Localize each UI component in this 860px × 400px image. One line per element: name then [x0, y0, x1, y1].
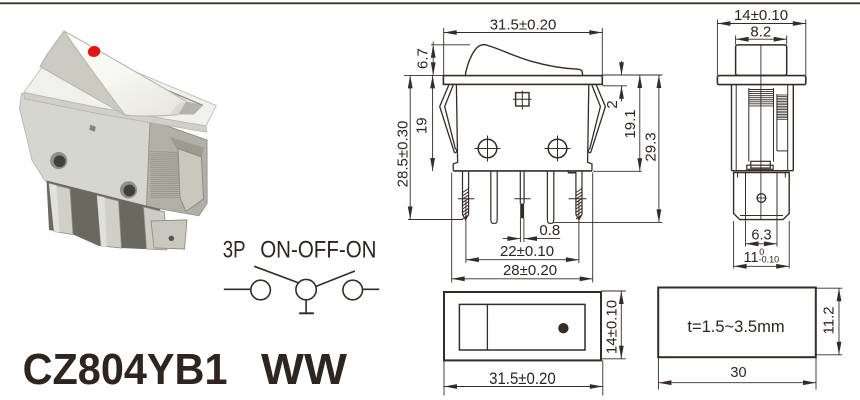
svg-text:3P: 3P	[223, 237, 246, 264]
svg-text:19.1: 19.1	[622, 109, 639, 138]
svg-text:31.5±0.20: 31.5±0.20	[490, 17, 557, 34]
svg-text:14±0.10: 14±0.10	[734, 7, 788, 24]
svg-text:14±0.10: 14±0.10	[604, 300, 621, 354]
svg-text:11.2: 11.2	[821, 306, 838, 334]
svg-text:0.8: 0.8	[539, 222, 560, 239]
svg-text:ON-OFF-ON: ON-OFF-ON	[260, 237, 376, 264]
svg-text:22±0.10: 22±0.10	[500, 243, 554, 260]
svg-text:29.3: 29.3	[643, 132, 660, 161]
svg-text:WW: WW	[261, 345, 347, 394]
svg-text:-0.10: -0.10	[759, 255, 780, 265]
svg-text:CZ804YB1: CZ804YB1	[23, 345, 228, 394]
svg-text:11: 11	[743, 250, 758, 266]
svg-text:8.2: 8.2	[750, 23, 771, 40]
svg-text:28±0.20: 28±0.20	[503, 262, 557, 279]
svg-text:6.7: 6.7	[415, 48, 432, 69]
svg-text:31.5±0.20: 31.5±0.20	[489, 370, 556, 388]
svg-text:19: 19	[414, 117, 431, 134]
svg-text:30: 30	[730, 365, 746, 381]
svg-text:28.5±0.30: 28.5±0.30	[395, 121, 412, 188]
svg-text:t=1.5~3.5mm: t=1.5~3.5mm	[687, 318, 784, 336]
svg-text:2: 2	[604, 100, 621, 108]
svg-text:6.3: 6.3	[751, 227, 771, 243]
